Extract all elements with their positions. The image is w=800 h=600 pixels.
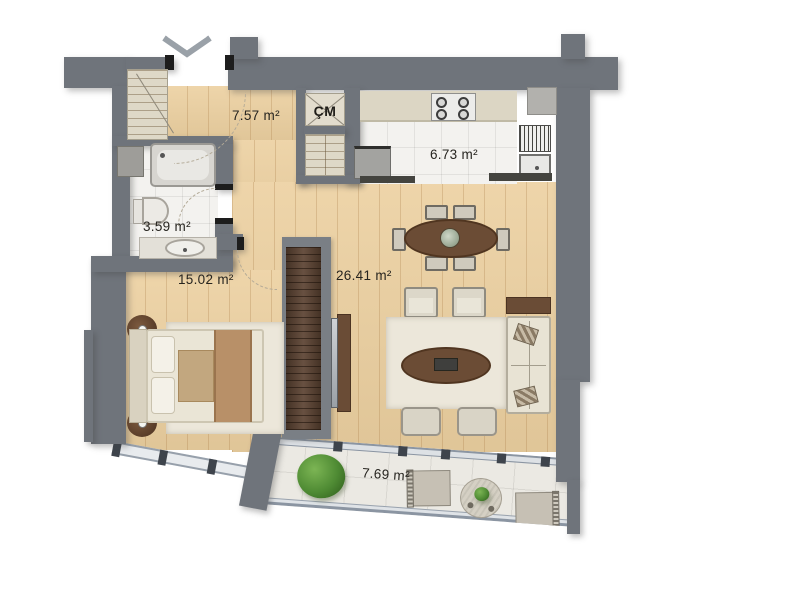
- window-mullion: [398, 446, 408, 457]
- kitchen-area-label: 6.73 m²: [430, 147, 478, 162]
- sofa-pillow: [513, 386, 538, 408]
- wardrobe-rail: [325, 135, 326, 175]
- window-mullion: [157, 450, 168, 466]
- dining-chair: [453, 256, 476, 271]
- hall-area-label: 7.57 m²: [232, 108, 280, 123]
- threshold: [360, 176, 415, 183]
- bathroom-area-label: 3.59 m²: [143, 219, 191, 234]
- hall-wardrobe: [305, 134, 345, 176]
- armchair: [452, 287, 486, 318]
- door-jamb: [225, 55, 234, 70]
- wall-segment: [556, 88, 590, 382]
- window-mullion: [441, 449, 451, 460]
- pouf: [457, 407, 497, 436]
- tv-panel: [337, 314, 351, 412]
- living-room-area-label: 26.41 m²: [336, 268, 392, 283]
- seat-cushion: [457, 298, 481, 313]
- cm-closet: ÇM: [305, 93, 345, 126]
- bed-runner: [214, 330, 252, 422]
- wall-segment: [556, 380, 580, 482]
- dining-chair: [453, 205, 476, 220]
- burner: [436, 97, 447, 108]
- window-mullion: [207, 459, 218, 475]
- door-swing: [174, 92, 246, 164]
- wall-segment: [567, 480, 580, 534]
- dining-chair: [496, 228, 510, 251]
- tv-screen: [331, 318, 338, 408]
- balcony-lounge-chair: [515, 492, 557, 527]
- cup: [488, 506, 494, 512]
- dining-chair: [425, 256, 448, 271]
- wall-column: [230, 37, 258, 59]
- burner: [436, 109, 447, 120]
- wall-segment: [228, 57, 618, 90]
- door-jamb: [237, 237, 244, 250]
- door-jamb: [215, 184, 233, 190]
- sofa-pillow: [513, 323, 539, 346]
- dining-chair: [425, 205, 448, 220]
- duct-shaft: [117, 146, 144, 177]
- seat-cushion: [409, 298, 433, 313]
- wall-column: [561, 34, 585, 59]
- floor-plan: ÇM: [0, 0, 800, 600]
- console-table: [506, 297, 551, 314]
- table-plant-pot: [474, 487, 490, 502]
- folded-blanket: [178, 350, 214, 402]
- plant: [296, 453, 347, 500]
- burner: [458, 97, 469, 108]
- window-mullion: [333, 441, 343, 452]
- entry-closet: [127, 69, 168, 140]
- refrigerator: [354, 146, 391, 179]
- armchair: [404, 287, 438, 318]
- bathtub-faucet: [160, 153, 165, 158]
- dish-rack: [519, 125, 551, 152]
- window-mullion: [497, 453, 507, 464]
- door-jamb: [215, 218, 233, 224]
- cup: [467, 502, 473, 508]
- wall-niche: [527, 87, 557, 115]
- balcony-lounge-chair: [408, 470, 450, 507]
- wall-segment: [64, 57, 128, 88]
- bedroom-wardrobe: [286, 247, 321, 430]
- pillow: [151, 377, 175, 414]
- cm-closet-label: ÇM: [306, 103, 344, 119]
- door-swing: [237, 250, 277, 290]
- wall-segment: [84, 330, 93, 442]
- basin-faucet: [183, 248, 187, 252]
- entrance-arrow-icon: [156, 33, 218, 61]
- sofa: [506, 316, 551, 414]
- centerpiece: [441, 229, 459, 247]
- tray: [434, 358, 458, 371]
- wall-segment: [91, 258, 126, 444]
- pouf: [401, 407, 441, 436]
- wall-segment: [296, 175, 360, 184]
- burner: [458, 109, 469, 120]
- window-mullion: [541, 456, 551, 467]
- bedroom-area-label: 15.02 m²: [178, 272, 234, 287]
- bed-headboard: [129, 329, 147, 423]
- stove: [431, 93, 476, 121]
- drain: [535, 166, 539, 170]
- pillow: [151, 336, 175, 373]
- chair-back: [552, 491, 560, 527]
- threshold: [489, 173, 552, 181]
